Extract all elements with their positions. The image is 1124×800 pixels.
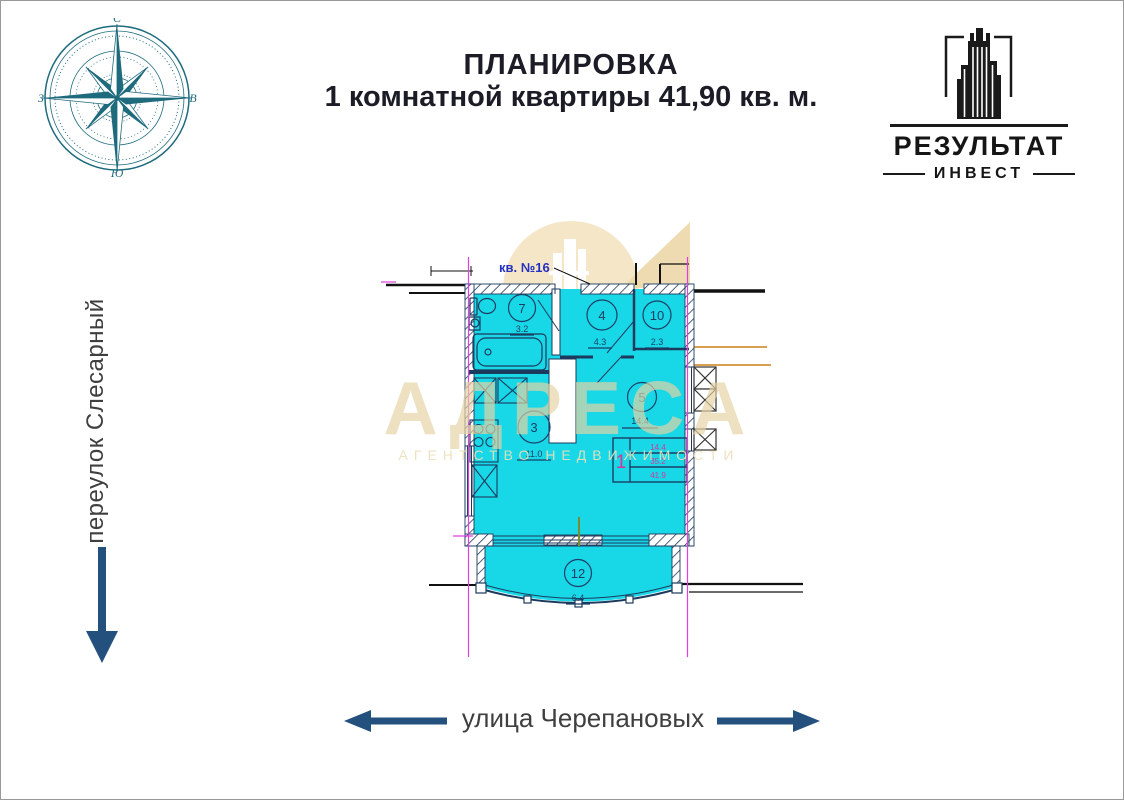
svg-text:3.2: 3.2	[516, 324, 529, 334]
svg-text:14.4: 14.4	[631, 416, 649, 426]
floor-plan: 7 3.2 4 4.3 10 2.3 3 11.0	[371, 236, 821, 676]
street-label-left: переулок Слесарный	[51, 286, 141, 556]
logo-dash-left	[883, 173, 925, 175]
page-title: ПЛАНИРОВКА 1 комнатной квартиры 41,90 кв…	[271, 49, 871, 114]
svg-text:кв. №16: кв. №16	[499, 260, 550, 275]
arrow-right-icon	[717, 708, 821, 734]
svg-text:10: 10	[650, 308, 664, 323]
stamp-area-1: 14.4	[650, 443, 666, 452]
svg-text:6.4: 6.4	[572, 593, 585, 603]
svg-text:3: 3	[530, 420, 537, 435]
logo-baseline	[890, 124, 1068, 127]
svg-text:4.3: 4.3	[594, 337, 607, 347]
arrow-left-icon	[343, 708, 447, 734]
utility-lines	[691, 347, 771, 365]
stamp-area-3: 41.9	[650, 471, 666, 480]
flyer-page: С В Ю З ПЛАНИРОВКА 1 комнатной квартиры …	[0, 0, 1124, 800]
svg-text:12: 12	[571, 566, 585, 581]
street-label-bottom: улица Черепановых	[453, 703, 713, 734]
street-label-left-text: переулок Слесарный	[82, 298, 110, 543]
building-icon	[914, 27, 1044, 119]
logo-division-name: ИНВЕСТ	[934, 165, 1024, 183]
compass-letter-east: В	[189, 91, 197, 105]
compass-letter-north: С	[113, 18, 122, 25]
developer-logo: РЕЗУЛЬТАТ ИНВЕСТ	[879, 27, 1079, 183]
stamp-area-2: 35.2	[650, 457, 666, 466]
apartment-number-callout: кв. №16	[499, 260, 590, 284]
title-line1: ПЛАНИРОВКА	[271, 49, 871, 81]
logo-company-name: РЕЗУЛЬТАТ	[879, 131, 1079, 162]
compass-letter-west: З	[38, 91, 44, 105]
stamp-rooms-count: 1	[616, 452, 627, 473]
title-line2: 1 комнатной квартиры 41,90 кв. м.	[271, 81, 871, 113]
svg-text:7: 7	[518, 301, 525, 316]
compass-star	[43, 24, 191, 172]
svg-text:4: 4	[598, 308, 605, 323]
svg-text:2.3: 2.3	[651, 337, 664, 347]
svg-text:5: 5	[638, 390, 645, 405]
compass-letter-south: Ю	[110, 166, 124, 178]
arrow-down-icon	[85, 547, 119, 665]
ventilation-shafts	[694, 367, 716, 450]
svg-text:11.0: 11.0	[526, 449, 543, 459]
compass-rose-icon: С В Ю З	[37, 18, 197, 178]
logo-dash-right	[1033, 173, 1075, 175]
